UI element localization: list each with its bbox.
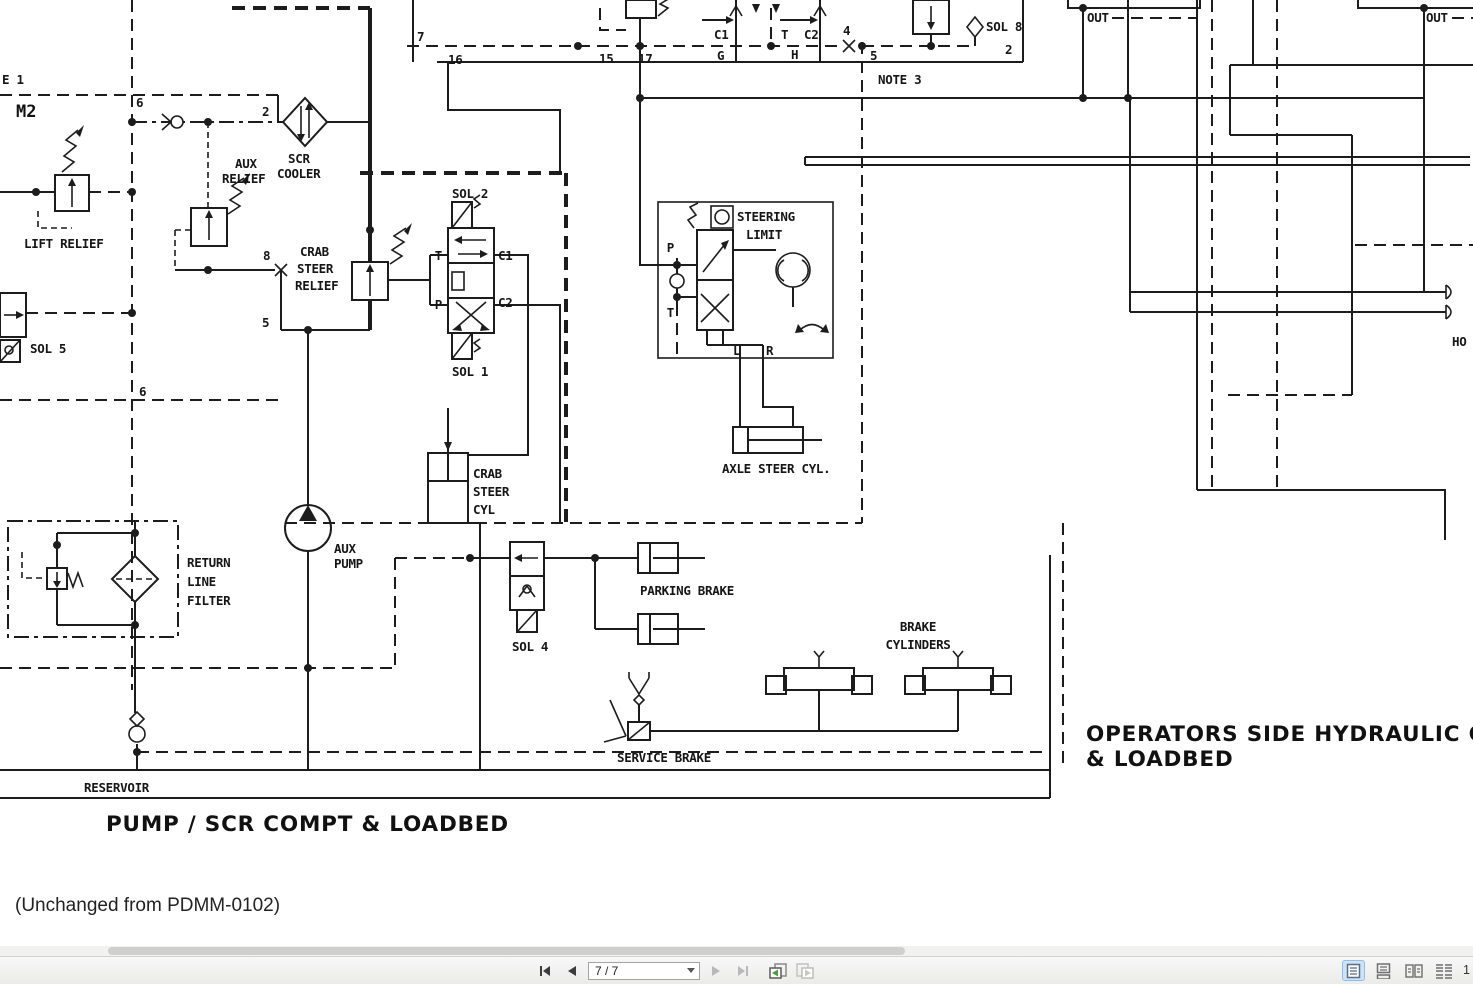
- crab-steer-cylinder: [428, 420, 468, 523]
- ref-7: 7: [417, 29, 424, 44]
- single-page-icon: [1346, 963, 1361, 979]
- continuous-mode-button[interactable]: [1372, 960, 1395, 981]
- label-sol8: SOL 8: [986, 19, 1022, 34]
- previous-view-icon: [768, 962, 788, 980]
- ref-6-mid: 6: [139, 384, 146, 399]
- label-crab: CRAB: [300, 244, 330, 259]
- port-c1-sol2: C1: [498, 248, 512, 263]
- label-auxpump-1: AUX: [334, 541, 356, 556]
- chevron-down-icon: [687, 968, 695, 973]
- label-sol4: SOL 4: [512, 639, 548, 654]
- label-hose: HO: [1452, 334, 1466, 349]
- label-axle-steer-cyl: AXLE STEER CYL.: [722, 461, 830, 476]
- label-cylinders: CYLINDERS: [885, 637, 950, 652]
- lift-relief-valve: [55, 125, 89, 211]
- caption-pump-compt: PUMP / SCR COMPT & LOADBED: [106, 812, 509, 837]
- port-c1-top: C1: [714, 27, 728, 42]
- label-lift-relief: LIFT RELIEF: [24, 236, 103, 251]
- label-sol1: SOL 1: [452, 364, 488, 379]
- horizontal-scrollbar[interactable]: [0, 946, 1473, 956]
- page-display-modes: [1342, 957, 1455, 984]
- next-page-icon: [710, 964, 722, 978]
- label-sol5: SOL 5: [30, 341, 66, 356]
- label-brake: BRAKE: [900, 619, 936, 634]
- aux-pump: [285, 505, 331, 551]
- previous-page-button[interactable]: [561, 960, 583, 982]
- label-note3: NOTE 3: [878, 72, 921, 87]
- caption-operators-side-1: OPERATORS SIDE HYDRAULIC C: [1086, 722, 1473, 747]
- label-rlf-3: FILTER: [187, 593, 231, 608]
- ref-2-cooler: 2: [262, 104, 269, 119]
- next-page-button[interactable]: [705, 960, 727, 982]
- label-crabcyl-3: CYL: [473, 502, 495, 517]
- hydraulic-schematic: E 1 M2 6 2 SCR COOLER AUX RELIEF LIFT RE…: [0, 0, 1473, 946]
- next-view-button[interactable]: [794, 960, 816, 982]
- dashed-pilot-lines: [0, 0, 1473, 770]
- two-page-icon: [1405, 963, 1423, 979]
- label-auxpump-2: PUMP: [334, 556, 363, 571]
- ref-4: 4: [843, 23, 850, 38]
- last-page-button[interactable]: [732, 960, 754, 982]
- port-l: L: [733, 343, 741, 358]
- label-m2: M2: [16, 102, 36, 122]
- ref-5-crab: 5: [262, 315, 269, 330]
- label-rlf-2: LINE: [187, 574, 216, 589]
- ref-15: 15: [599, 51, 613, 66]
- two-page-continuous-icon: [1435, 963, 1453, 979]
- previous-page-icon: [566, 964, 578, 978]
- first-page-icon: [538, 964, 552, 978]
- brake-cylinder-assemblies: [766, 651, 1011, 694]
- label-crab-steer: STEER: [297, 261, 334, 276]
- next-view-icon: [795, 962, 815, 980]
- top-relief-valve: [626, 0, 670, 18]
- hose-couplings: [1446, 285, 1451, 319]
- document-page: E 1 M2 6 2 SCR COOLER AUX RELIEF LIFT RE…: [0, 0, 1473, 946]
- ref-8: 8: [263, 248, 270, 263]
- label-out-right: OUT: [1426, 10, 1448, 25]
- label-cooler: COOLER: [277, 166, 321, 181]
- ref-17: 17: [638, 51, 652, 66]
- port-c2-sol2: C2: [498, 295, 512, 310]
- first-page-button[interactable]: [534, 960, 556, 982]
- label-service-brake: SERVICE BRAKE: [617, 750, 711, 765]
- ref-2-sol8: 2: [1005, 42, 1012, 57]
- sol2-sol1-valve: [448, 195, 494, 359]
- scrollbar-thumb[interactable]: [108, 947, 905, 955]
- return-line-filter: [8, 521, 178, 637]
- port-p-steer: P: [667, 240, 674, 255]
- label-crab-relief: RELIEF: [295, 278, 338, 293]
- label-scr: SCR: [288, 151, 310, 166]
- port-h: H: [791, 47, 798, 62]
- sol5-valve: [0, 293, 26, 362]
- viewer-toolbar: 7 / 7: [0, 956, 1473, 984]
- port-g: G: [717, 48, 724, 63]
- reservoir-check-valve: [129, 712, 145, 742]
- page-number-combobox[interactable]: 7 / 7: [588, 962, 700, 980]
- caption-operators-side-2: & LOADBED: [1086, 747, 1233, 772]
- label-steering: STEERING: [737, 209, 795, 224]
- port-c2-top: C2: [804, 27, 818, 42]
- two-page-continuous-mode-button[interactable]: [1432, 960, 1455, 981]
- label-crabcyl-2: STEER: [473, 484, 510, 499]
- two-page-mode-button[interactable]: [1402, 960, 1425, 981]
- previous-view-button[interactable]: [767, 960, 789, 982]
- continuous-icon: [1376, 963, 1391, 979]
- label-rlf-1: RETURN: [187, 555, 230, 570]
- page-navigation: 7 / 7: [534, 957, 816, 984]
- scr-cooler: [283, 98, 327, 146]
- sol4-valve: [510, 542, 544, 632]
- label-limit: LIMIT: [746, 227, 782, 242]
- label-e1: E 1: [2, 72, 24, 87]
- service-brake-pedal: [604, 672, 650, 742]
- port-t-steer: T: [667, 305, 674, 320]
- schematic-labels: E 1 M2 6 2 SCR COOLER AUX RELIEF LIFT RE…: [2, 10, 1466, 795]
- steering-limit-assembly: [658, 202, 833, 358]
- port-t-top: T: [781, 27, 788, 42]
- port-t-sol2: T: [435, 248, 442, 263]
- thick-main-lines: [232, 8, 566, 523]
- caption-footnote: (Unchanged from PDMM-0102): [15, 895, 280, 916]
- label-parking-brake: PARKING BRAKE: [640, 583, 734, 598]
- label-aux-relief: RELIEF: [222, 171, 265, 186]
- ref-16: 16: [448, 52, 462, 67]
- top-check-arrows: [726, 4, 826, 24]
- port-p-sol2: P: [435, 297, 442, 312]
- zoom-value-cropped: 1: [1463, 963, 1470, 977]
- label-out-left: OUT: [1087, 10, 1109, 25]
- label-sol2: SOL 2: [452, 186, 488, 201]
- label-crabcyl-1: CRAB: [473, 466, 503, 481]
- ref-6-top: 6: [136, 95, 143, 110]
- single-page-mode-button[interactable]: [1342, 960, 1365, 981]
- page-display: 7 / 7: [595, 964, 618, 978]
- ref-5-top: 5: [870, 48, 877, 63]
- label-reservoir: RESERVOIR: [84, 780, 150, 795]
- last-page-icon: [736, 964, 750, 978]
- junction-dots: [32, 4, 1428, 756]
- label-aux: AUX: [235, 156, 257, 171]
- port-r: R: [766, 343, 774, 358]
